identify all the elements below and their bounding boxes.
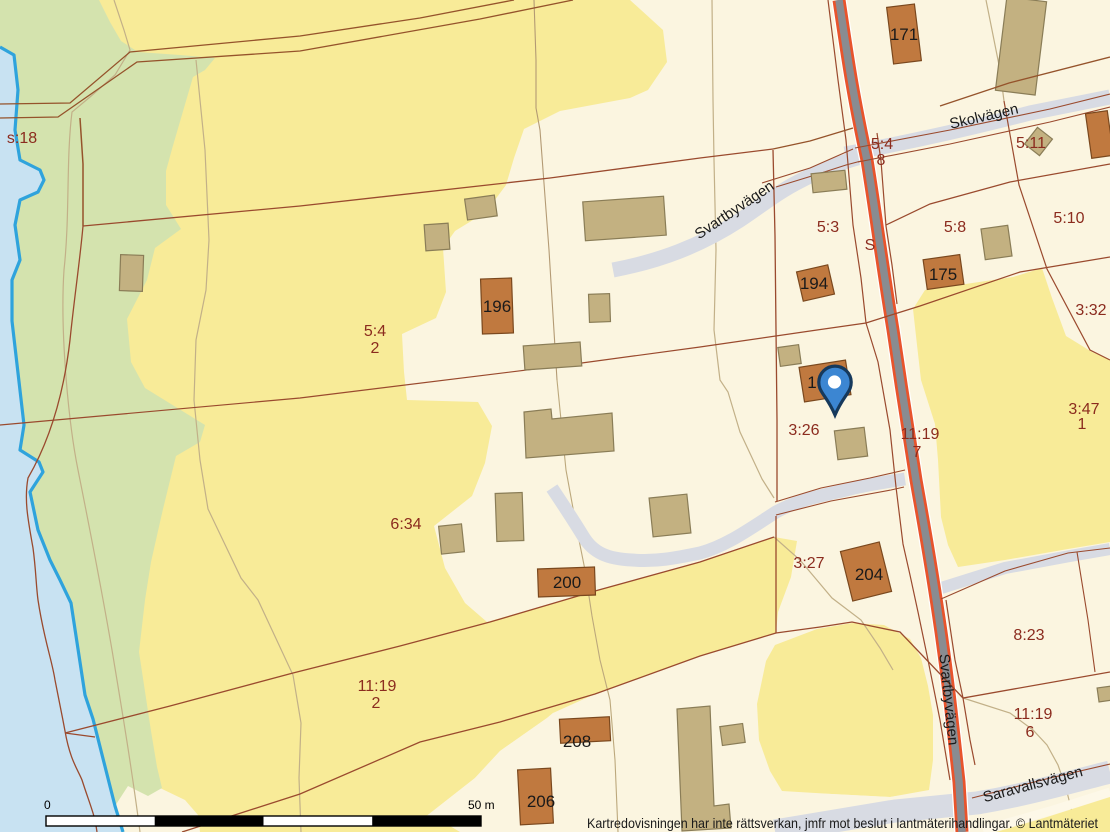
svg-text:5:4: 5:4 bbox=[364, 323, 386, 340]
svg-text:3:27: 3:27 bbox=[793, 555, 824, 572]
svg-text:5:11: 5:11 bbox=[1016, 135, 1046, 152]
svg-text:6: 6 bbox=[1026, 724, 1035, 741]
svg-text:11:19: 11:19 bbox=[358, 678, 397, 695]
svg-text:171: 171 bbox=[890, 25, 918, 44]
svg-text:5:4: 5:4 bbox=[871, 136, 893, 153]
svg-text:208: 208 bbox=[563, 732, 591, 751]
svg-text:5:3: 5:3 bbox=[817, 219, 839, 236]
svg-text:8: 8 bbox=[877, 152, 886, 169]
svg-text:206: 206 bbox=[527, 792, 555, 811]
svg-text:204: 204 bbox=[855, 565, 883, 584]
svg-text:196: 196 bbox=[483, 297, 511, 316]
svg-text:2: 2 bbox=[371, 340, 380, 357]
svg-text:s:18: s:18 bbox=[7, 130, 37, 147]
svg-text:2: 2 bbox=[372, 695, 381, 712]
svg-text:6:34: 6:34 bbox=[390, 516, 421, 533]
svg-text:1: 1 bbox=[807, 373, 816, 392]
svg-text:1: 1 bbox=[1078, 416, 1087, 433]
svg-text:50 m: 50 m bbox=[468, 798, 495, 812]
svg-text:11:19: 11:19 bbox=[1014, 706, 1053, 723]
svg-text:194: 194 bbox=[800, 274, 828, 293]
svg-text:5:10: 5:10 bbox=[1053, 210, 1084, 227]
svg-text:175: 175 bbox=[929, 265, 957, 284]
svg-text:200: 200 bbox=[553, 573, 581, 592]
svg-text:S: S bbox=[865, 237, 876, 254]
svg-text:3:26: 3:26 bbox=[788, 422, 819, 439]
svg-text:8:23: 8:23 bbox=[1013, 627, 1044, 644]
svg-text:0: 0 bbox=[44, 798, 51, 812]
svg-text:Kartredovisningen har inte rät: Kartredovisningen har inte rättsverkan, … bbox=[587, 816, 1098, 831]
svg-text:3:32: 3:32 bbox=[1075, 302, 1106, 319]
svg-text:5:8: 5:8 bbox=[944, 219, 966, 236]
svg-text:7: 7 bbox=[913, 444, 922, 461]
svg-text:11:19: 11:19 bbox=[901, 426, 940, 443]
